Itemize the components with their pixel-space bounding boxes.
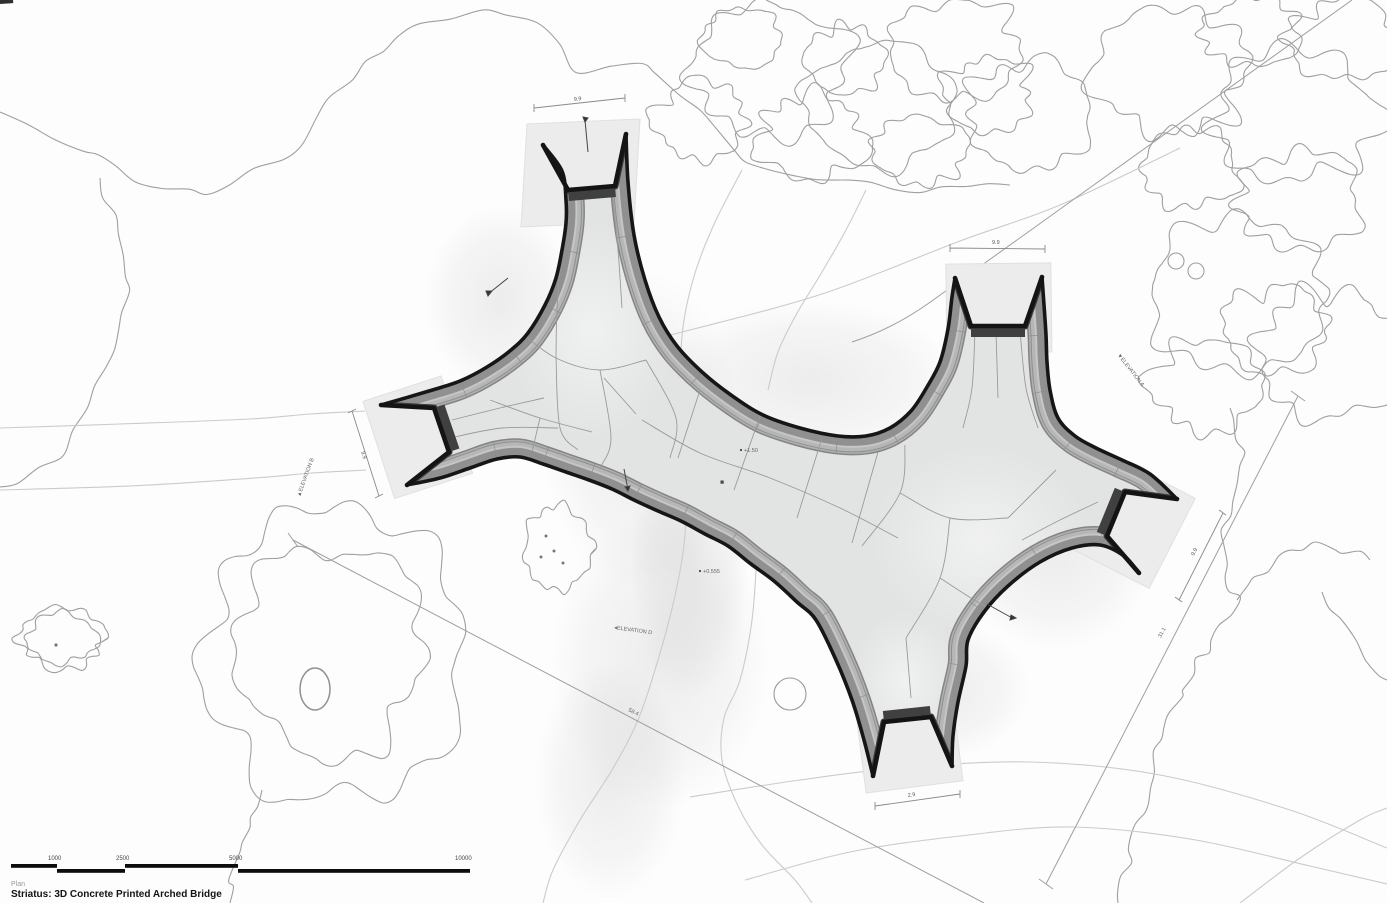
svg-text:1000: 1000 bbox=[48, 856, 62, 862]
svg-text:2.9: 2.9 bbox=[907, 792, 915, 799]
svg-text:9.9: 9.9 bbox=[574, 96, 582, 103]
svg-text:5000: 5000 bbox=[229, 856, 243, 862]
svg-text:9.9: 9.9 bbox=[992, 240, 1000, 246]
svg-text:10000: 10000 bbox=[455, 856, 472, 862]
svg-text:2500: 2500 bbox=[116, 856, 130, 862]
svg-text:Plan: Plan bbox=[11, 881, 25, 888]
svg-text:+1.50: +1.50 bbox=[744, 448, 758, 454]
svg-text:Striatus: 3D Concrete Printed: Striatus: 3D Concrete Printed Arched Bri… bbox=[11, 889, 222, 900]
svg-text:+0.555: +0.555 bbox=[703, 569, 720, 575]
